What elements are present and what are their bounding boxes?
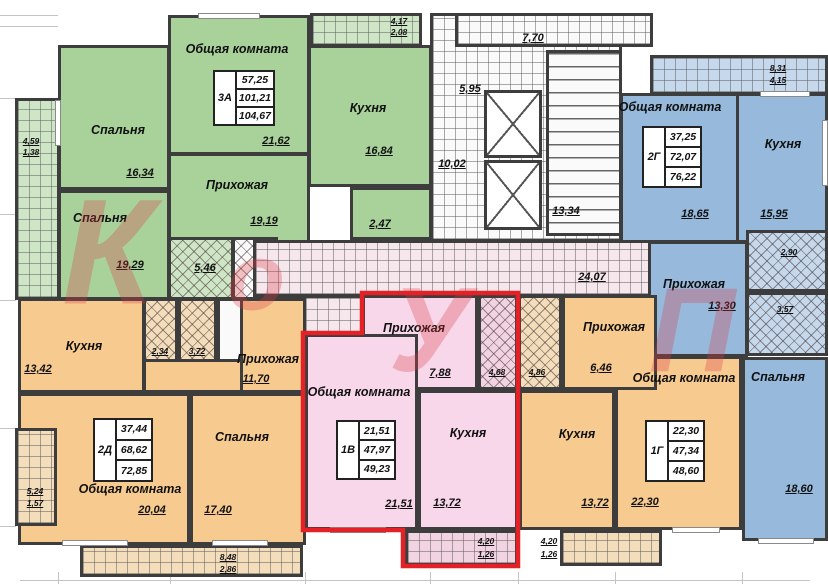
dimension-line — [0, 214, 16, 215]
dimension-line — [0, 300, 16, 301]
stats-box-1g: 1Г 22,30 47,34 48,60 — [645, 420, 705, 482]
loggia-area: 2,90 — [781, 247, 798, 257]
window — [672, 527, 720, 533]
window — [330, 527, 386, 533]
stat-value: 104,67 — [237, 108, 273, 124]
balcony-area: 1,26 — [478, 549, 495, 559]
balcony-area: 2,08 — [391, 27, 408, 37]
loggia-area: 3,57 — [777, 304, 794, 314]
stat-value: 48,60 — [669, 462, 703, 480]
balcony-area: 1,57 — [27, 498, 44, 508]
balcony-area: 4,20 — [541, 536, 558, 546]
room-area: 17,40 — [204, 504, 232, 516]
stat-value: 68,62 — [117, 441, 151, 462]
stat-value: 101,21 — [237, 90, 273, 108]
corridor-notch — [303, 295, 363, 335]
balcony-area: 2,86 — [220, 564, 237, 574]
core-balcony — [455, 13, 653, 47]
room-label: Кухня — [66, 339, 103, 353]
dimension-tick — [305, 572, 306, 584]
room-kitchen-3a — [308, 45, 432, 187]
balcony-left-3a — [15, 98, 60, 300]
room-hall-2g — [648, 241, 748, 357]
room-label: Прихожая — [237, 352, 299, 366]
room-area: 15,95 — [760, 208, 788, 220]
room-area: 13,72 — [433, 497, 461, 509]
room-label: Спальня — [215, 430, 269, 444]
dimension-line — [0, 26, 58, 27]
room-area: 21,62 — [262, 135, 290, 147]
balcony-area: 4,20 — [478, 536, 495, 546]
apartment-code: 1Г — [647, 422, 669, 480]
elevator-2 — [484, 160, 542, 230]
balcony-area: 8,31 — [770, 63, 787, 73]
window — [198, 13, 260, 19]
stat-value: 76,22 — [666, 168, 700, 186]
stat-value: 49,23 — [360, 461, 394, 478]
room-kitchen-1g — [519, 390, 615, 530]
room-area: 11,70 — [243, 373, 270, 385]
balcony-top-2g — [650, 55, 828, 95]
room-wc-3a — [350, 187, 432, 240]
room-area: 21,51 — [385, 498, 413, 510]
area-stairs: 13,34 — [552, 205, 580, 217]
window — [55, 100, 61, 146]
room-label: Прихожая — [663, 277, 725, 291]
window — [62, 540, 128, 546]
balcony-area: 4,15 — [770, 75, 787, 85]
dimension-line — [0, 15, 58, 16]
balcony-area: 1,38 — [23, 147, 40, 157]
room-label: Кухня — [765, 137, 802, 151]
stat-value: 72,85 — [117, 461, 151, 480]
room-area: 22,30 — [631, 496, 659, 508]
area-lobby1: 5,95 — [459, 83, 480, 95]
stats-box-3a: 3А 57,25 101,21 104,67 — [213, 70, 275, 126]
room-bedroom2-3a — [58, 190, 170, 300]
room-label: Прихожая — [383, 321, 445, 335]
area-lobby2: 10,02 — [438, 158, 466, 170]
dimension-line — [0, 428, 16, 429]
stat-value: 22,30 — [669, 422, 703, 442]
room-area: 18,60 — [785, 483, 813, 495]
room-area: 13,42 — [24, 363, 52, 375]
room-area: 16,84 — [365, 145, 393, 157]
room-area: 2,47 — [369, 218, 390, 230]
area-core-balcony: 7,70 — [522, 32, 543, 44]
stat-value: 57,25 — [237, 72, 273, 90]
balcony-bottom-2d — [80, 545, 303, 577]
room-label: Общая комната — [619, 100, 722, 114]
room-area: 2,34 — [152, 346, 169, 356]
hall-mid-2d — [143, 358, 243, 393]
room-area: 18,65 — [681, 208, 709, 220]
stat-value: 37,25 — [666, 128, 700, 148]
room-area: 13,30 — [708, 300, 736, 312]
dimension-tick — [742, 572, 743, 584]
window — [212, 540, 268, 546]
room-area: 5,46 — [194, 262, 215, 274]
room-area: 3,72 — [189, 346, 206, 356]
dimension-line — [0, 526, 16, 527]
stat-value: 37,44 — [117, 420, 151, 441]
room-area: 19,29 — [116, 259, 144, 271]
dimension-line — [20, 580, 810, 581]
room-area: 20,04 — [138, 504, 166, 516]
balcony-1v — [405, 530, 518, 566]
corridor-floor — [253, 240, 655, 297]
dimension-tick — [518, 572, 519, 584]
stat-value: 21,51 — [360, 422, 394, 441]
loggia2-2g — [746, 292, 828, 356]
stat-value: 72,07 — [666, 148, 700, 168]
stat-value: 47,34 — [669, 442, 703, 462]
balcony-area: 1,26 — [541, 549, 558, 559]
window — [758, 538, 814, 544]
apartment-code: 3А — [215, 72, 237, 124]
room-label: Кухня — [559, 427, 596, 441]
loggia1-2g — [746, 230, 828, 292]
area-corridor: 24,07 — [578, 271, 606, 283]
elevator-1 — [484, 90, 542, 158]
room-area: 6,46 — [590, 362, 611, 374]
room-label: Общая комната — [633, 371, 736, 385]
window — [760, 91, 810, 97]
stats-box-2d: 2Д 37,44 68,62 72,85 — [93, 418, 153, 482]
room-label: Кухня — [450, 426, 487, 440]
apartment-code: 1В — [338, 422, 360, 478]
balcony-area: 4,59 — [23, 136, 40, 146]
room-area: 13,72 — [581, 497, 609, 509]
room-label: Общая комната — [79, 482, 182, 496]
room-area: 4,68 — [489, 367, 506, 377]
balcony-1g — [560, 530, 662, 566]
room-label: Кухня — [350, 101, 387, 115]
room-label: Общая комната — [308, 385, 411, 399]
apartment-code: 2Г — [644, 128, 666, 186]
window — [822, 120, 828, 186]
balcony-area: 8,48 — [220, 552, 237, 562]
balcony-left-2d — [15, 428, 57, 526]
room-label: Спальня — [91, 123, 145, 137]
room-area: 4,86 — [529, 367, 546, 377]
room-area: 7,88 — [429, 367, 450, 379]
floor-plan: Общая комната 21,62 Кухня 16,84 Спальня … — [0, 0, 828, 585]
stats-box-2g: 2Г 37,25 72,07 76,22 — [642, 126, 702, 188]
dimension-line — [0, 98, 16, 99]
room-area: 19,19 — [250, 215, 278, 227]
dimension-tick — [615, 572, 616, 584]
room-label: Прихожая — [583, 320, 645, 334]
stats-box-1v: 1В 21,51 47,97 49,23 — [336, 420, 396, 480]
room-kitchen-2g — [736, 93, 828, 243]
room-bedroom-2d — [190, 393, 306, 545]
room-area: 16,34 — [126, 167, 154, 179]
apartment-code: 2Д — [95, 420, 117, 480]
room-label: Спальня — [73, 211, 127, 225]
room-label: Общая комната — [186, 42, 289, 56]
room-bedroom-2g — [742, 357, 828, 541]
room-label: Спальня — [751, 370, 805, 384]
stat-value: 47,97 — [360, 441, 394, 460]
balcony-area: 4,17 — [391, 16, 408, 26]
dimension-tick — [430, 572, 431, 584]
dimension-tick — [58, 572, 59, 584]
balcony-area: 5,24 — [27, 486, 44, 496]
room-kitchen-1v — [418, 390, 518, 530]
room-label: Прихожая — [206, 178, 268, 192]
